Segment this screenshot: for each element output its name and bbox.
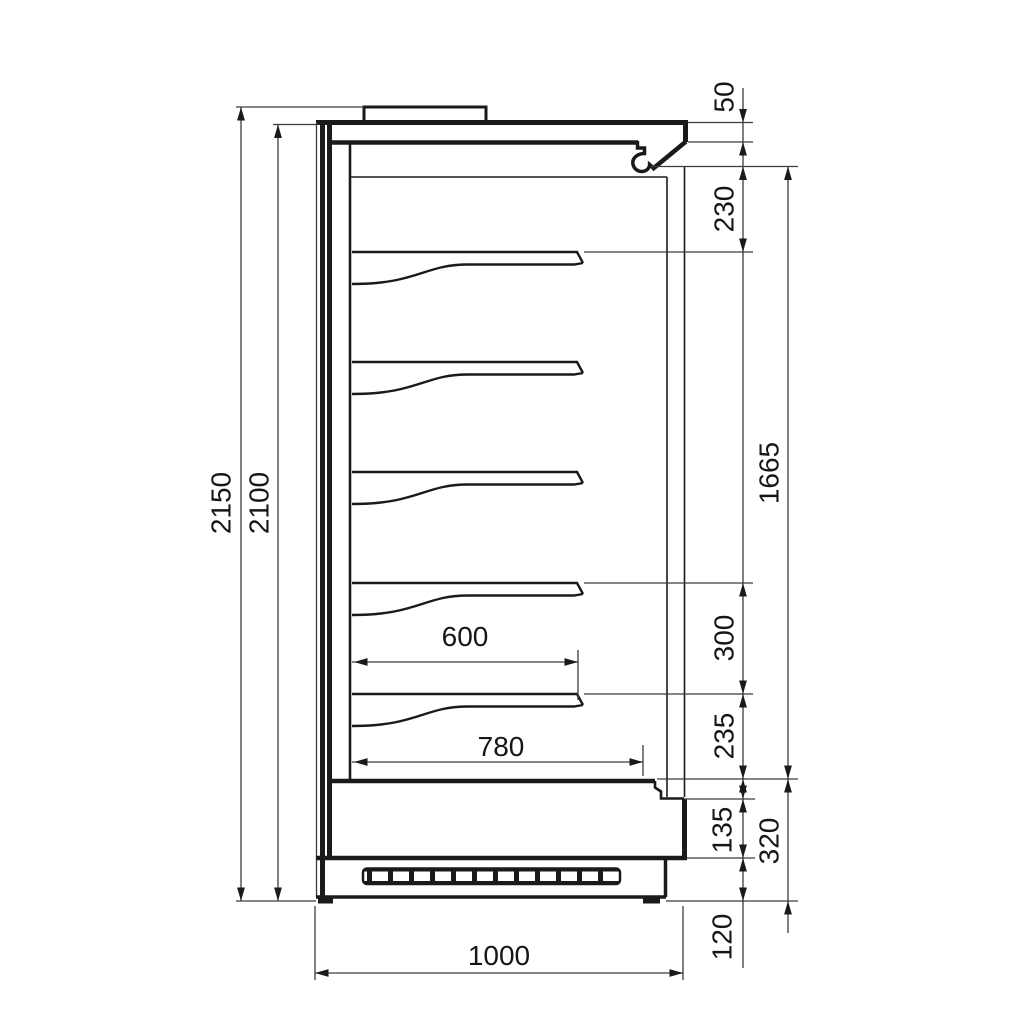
dim-shelf-pitch-label: 300 (709, 615, 740, 662)
shelf-4 (352, 583, 583, 615)
dim-overall-height-label: 2150 (206, 472, 237, 534)
dim-deck-depth-label: 780 (478, 731, 525, 762)
dim-front-lower-panel-label: 135 (707, 807, 738, 854)
shelf-3 (352, 472, 583, 504)
shelf-1 (352, 252, 583, 284)
cabinet-section-diagram: 2150 2100 50 230 1665 300 235 135 320 12… (0, 0, 1024, 1024)
top-box (364, 107, 486, 120)
dimension-labels: 2150 2100 50 230 1665 300 235 135 320 12… (206, 81, 785, 971)
foot-left (318, 897, 333, 904)
canopy-slant (652, 142, 686, 170)
drawing-page: 2150 2100 50 230 1665 300 235 135 320 12… (0, 0, 1024, 1024)
dim-body-height-label: 2100 (244, 472, 275, 534)
cabinet-profile (316, 107, 687, 904)
dim-bottom-section-label: 320 (754, 818, 785, 865)
dim-canopy-front-label: 50 (709, 81, 740, 112)
dim-canopy-to-first-shelf-label: 230 (709, 186, 740, 233)
ventilation-grille (363, 869, 620, 885)
shelves (352, 252, 583, 726)
shelf-5 (352, 694, 583, 726)
dim-overall-depth-label: 1000 (468, 940, 530, 971)
deck-front-notch (655, 781, 684, 799)
dim-display-opening-label: 1665 (754, 442, 785, 504)
dim-plinth-height-label: 120 (707, 914, 738, 961)
shelf-2 (352, 362, 583, 394)
dim-last-shelf-to-deck-label: 235 (709, 713, 740, 760)
dim-shelf-depth-label: 600 (442, 621, 489, 652)
foot-right (643, 897, 660, 904)
